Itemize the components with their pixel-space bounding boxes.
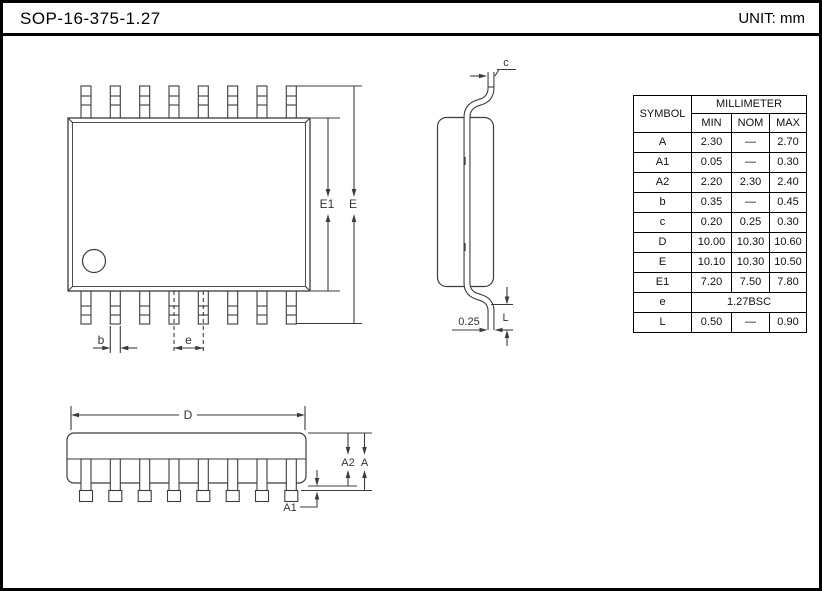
table-header-nom: NOM [732, 114, 770, 133]
min-cell: 7.20 [692, 273, 732, 293]
nom-cell: — [732, 193, 770, 213]
table-header-min: MIN [692, 114, 732, 133]
side-view: c L 0.25 [438, 57, 517, 346]
nom-cell: 7.50 [732, 273, 770, 293]
table-row: b 0.35 — 0.45 [634, 193, 807, 213]
table-row: A1 0.05 — 0.30 [634, 153, 807, 173]
symbol-cell: E1 [634, 273, 692, 293]
max-cell: 0.30 [770, 153, 807, 173]
nom-cell: — [732, 313, 770, 333]
max-cell: 7.80 [770, 273, 807, 293]
dimension-A: A [361, 433, 369, 491]
dim-label-L: L [502, 312, 508, 324]
symbol-cell: A2 [634, 173, 692, 193]
dim-label-A1: A1 [283, 502, 296, 514]
dimension-b: b [93, 326, 138, 353]
datasheet-page: SOP-16-375-1.27 UNIT: mm [0, 0, 822, 591]
table-row: e 1.27BSC [634, 293, 807, 313]
max-cell: 0.30 [770, 213, 807, 233]
nom-cell: 2.30 [732, 173, 770, 193]
symbol-cell: E [634, 253, 692, 273]
table-header-symbol: SYMBOL [634, 96, 692, 133]
symbol-cell: b [634, 193, 692, 213]
table-row: E 10.10 10.30 10.50 [634, 253, 807, 273]
table-row: E1 7.20 7.50 7.80 [634, 273, 807, 293]
dim-label-c: c [503, 57, 509, 69]
max-cell: 2.40 [770, 173, 807, 193]
dim-label-E1: E1 [320, 197, 335, 211]
nom-cell: 0.25 [732, 213, 770, 233]
dim-label-b: b [98, 333, 105, 347]
min-cell: 0.50 [692, 313, 732, 333]
dimension-A2: A2 [341, 433, 354, 486]
min-cell: 0.05 [692, 153, 732, 173]
dim-label-D: D [184, 408, 193, 422]
front-view-body [67, 433, 306, 483]
nom-cell: — [732, 133, 770, 153]
table-row: A2 2.20 2.30 2.40 [634, 173, 807, 193]
dim-label-A2: A2 [341, 457, 354, 469]
symbol-cell: L [634, 313, 692, 333]
max-cell: 10.60 [770, 233, 807, 253]
nom-cell: 10.30 [732, 233, 770, 253]
symbol-cell: A [634, 133, 692, 153]
front-view: D A2 [67, 406, 372, 514]
top-view: E1 E b [68, 86, 362, 353]
symbol-cell: A1 [634, 153, 692, 173]
min-cell: 0.35 [692, 193, 732, 213]
span-cell: 1.27BSC [692, 293, 807, 313]
symbol-cell: e [634, 293, 692, 313]
min-cell: 2.30 [692, 133, 732, 153]
table-row: A 2.30 — 2.70 [634, 133, 807, 153]
min-cell: 0.20 [692, 213, 732, 233]
nom-cell: 10.30 [732, 253, 770, 273]
nom-cell: — [732, 153, 770, 173]
table-row: L 0.50 — 0.90 [634, 313, 807, 333]
min-cell: 2.20 [692, 173, 732, 193]
table-header-millimeter: MILLIMETER [692, 96, 807, 114]
table-header-max: MAX [770, 114, 807, 133]
max-cell: 10.50 [770, 253, 807, 273]
symbol-cell: c [634, 213, 692, 233]
max-cell: 2.70 [770, 133, 807, 153]
min-cell: 10.00 [692, 233, 732, 253]
dim-label-foot-width: 0.25 [458, 316, 479, 328]
table-row: D 10.00 10.30 10.60 [634, 233, 807, 253]
dimension-table: SYMBOL MILLIMETER MIN NOM MAX A 2.30 — 2… [633, 95, 807, 333]
table-row: c 0.20 0.25 0.30 [634, 213, 807, 233]
min-cell: 10.10 [692, 253, 732, 273]
dim-label-A: A [361, 457, 369, 469]
dim-label-e: e [185, 333, 192, 347]
dimension-E1: E1 [311, 118, 340, 291]
dim-label-E: E [349, 197, 357, 211]
dimension-D: D [71, 406, 305, 430]
symbol-cell: D [634, 233, 692, 253]
max-cell: 0.90 [770, 313, 807, 333]
max-cell: 0.45 [770, 193, 807, 213]
